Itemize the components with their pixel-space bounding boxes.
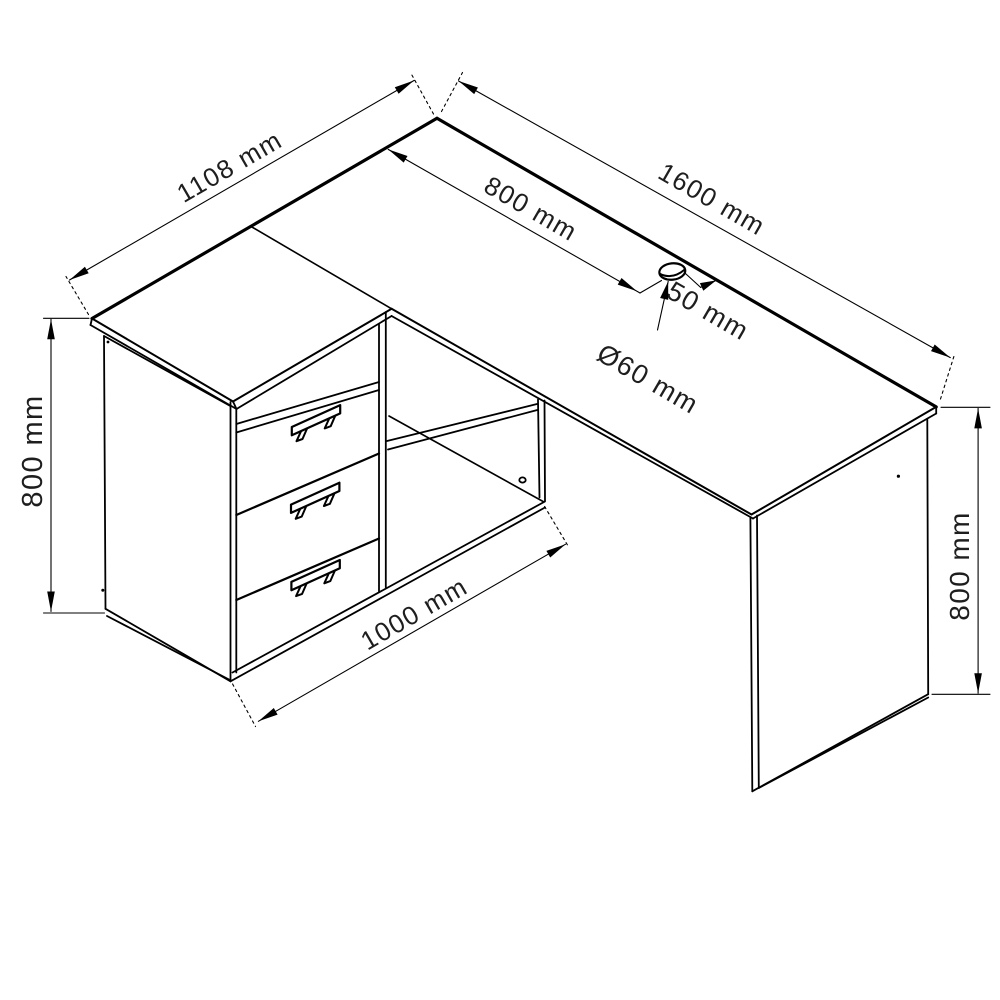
svg-text:800 mm: 800 mm <box>944 511 975 621</box>
svg-text:800 mm: 800 mm <box>17 394 49 507</box>
